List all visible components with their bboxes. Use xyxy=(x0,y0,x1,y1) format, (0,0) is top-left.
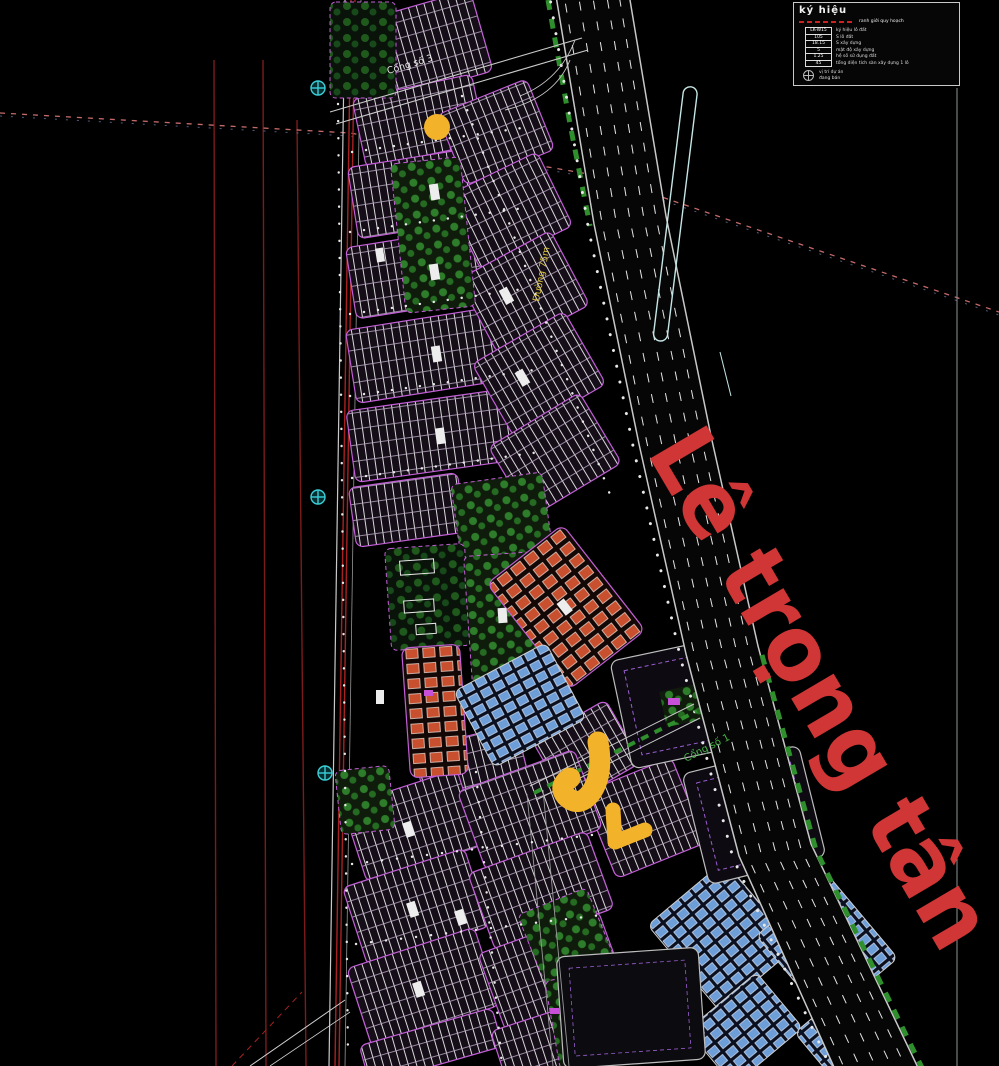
highlight-circle xyxy=(424,114,450,140)
legend-code: 45 xyxy=(806,60,832,67)
legend-title: ký hiệu xyxy=(799,5,954,16)
legend-boundary-label: ranh giới quy hoạch xyxy=(859,19,904,24)
legend-marker-text: vị trí dự án đang bán xyxy=(819,70,843,81)
legend-marker-line1: vị trí dự án xyxy=(819,70,843,76)
map-canvas: Cổng số 3 Đường 75m Cổng số 1 Lê trọng t… xyxy=(0,0,999,1066)
masterplan-drawing: Cổng số 3 Đường 75m Cổng số 1 Lê trọng t… xyxy=(0,0,999,1066)
legend-marker-line2: đang bán xyxy=(819,76,843,82)
compass-icon xyxy=(803,70,814,81)
boundary-dash-swatch xyxy=(799,21,855,23)
legend-marker-row: vị trí dự án đang bán xyxy=(803,70,954,81)
legend-label: tổng diện tích sàn xây dựng 1 lô xyxy=(832,60,909,67)
legend-boundary-sample: ranh giới quy hoạch xyxy=(799,18,954,25)
legend-box: ký hiệu ranh giới quy hoạch LK-W15 ký hi… xyxy=(793,2,960,86)
legend-table: LK-W15 ký hiệu lô đất 105 S lô đất 18.15… xyxy=(805,27,909,67)
